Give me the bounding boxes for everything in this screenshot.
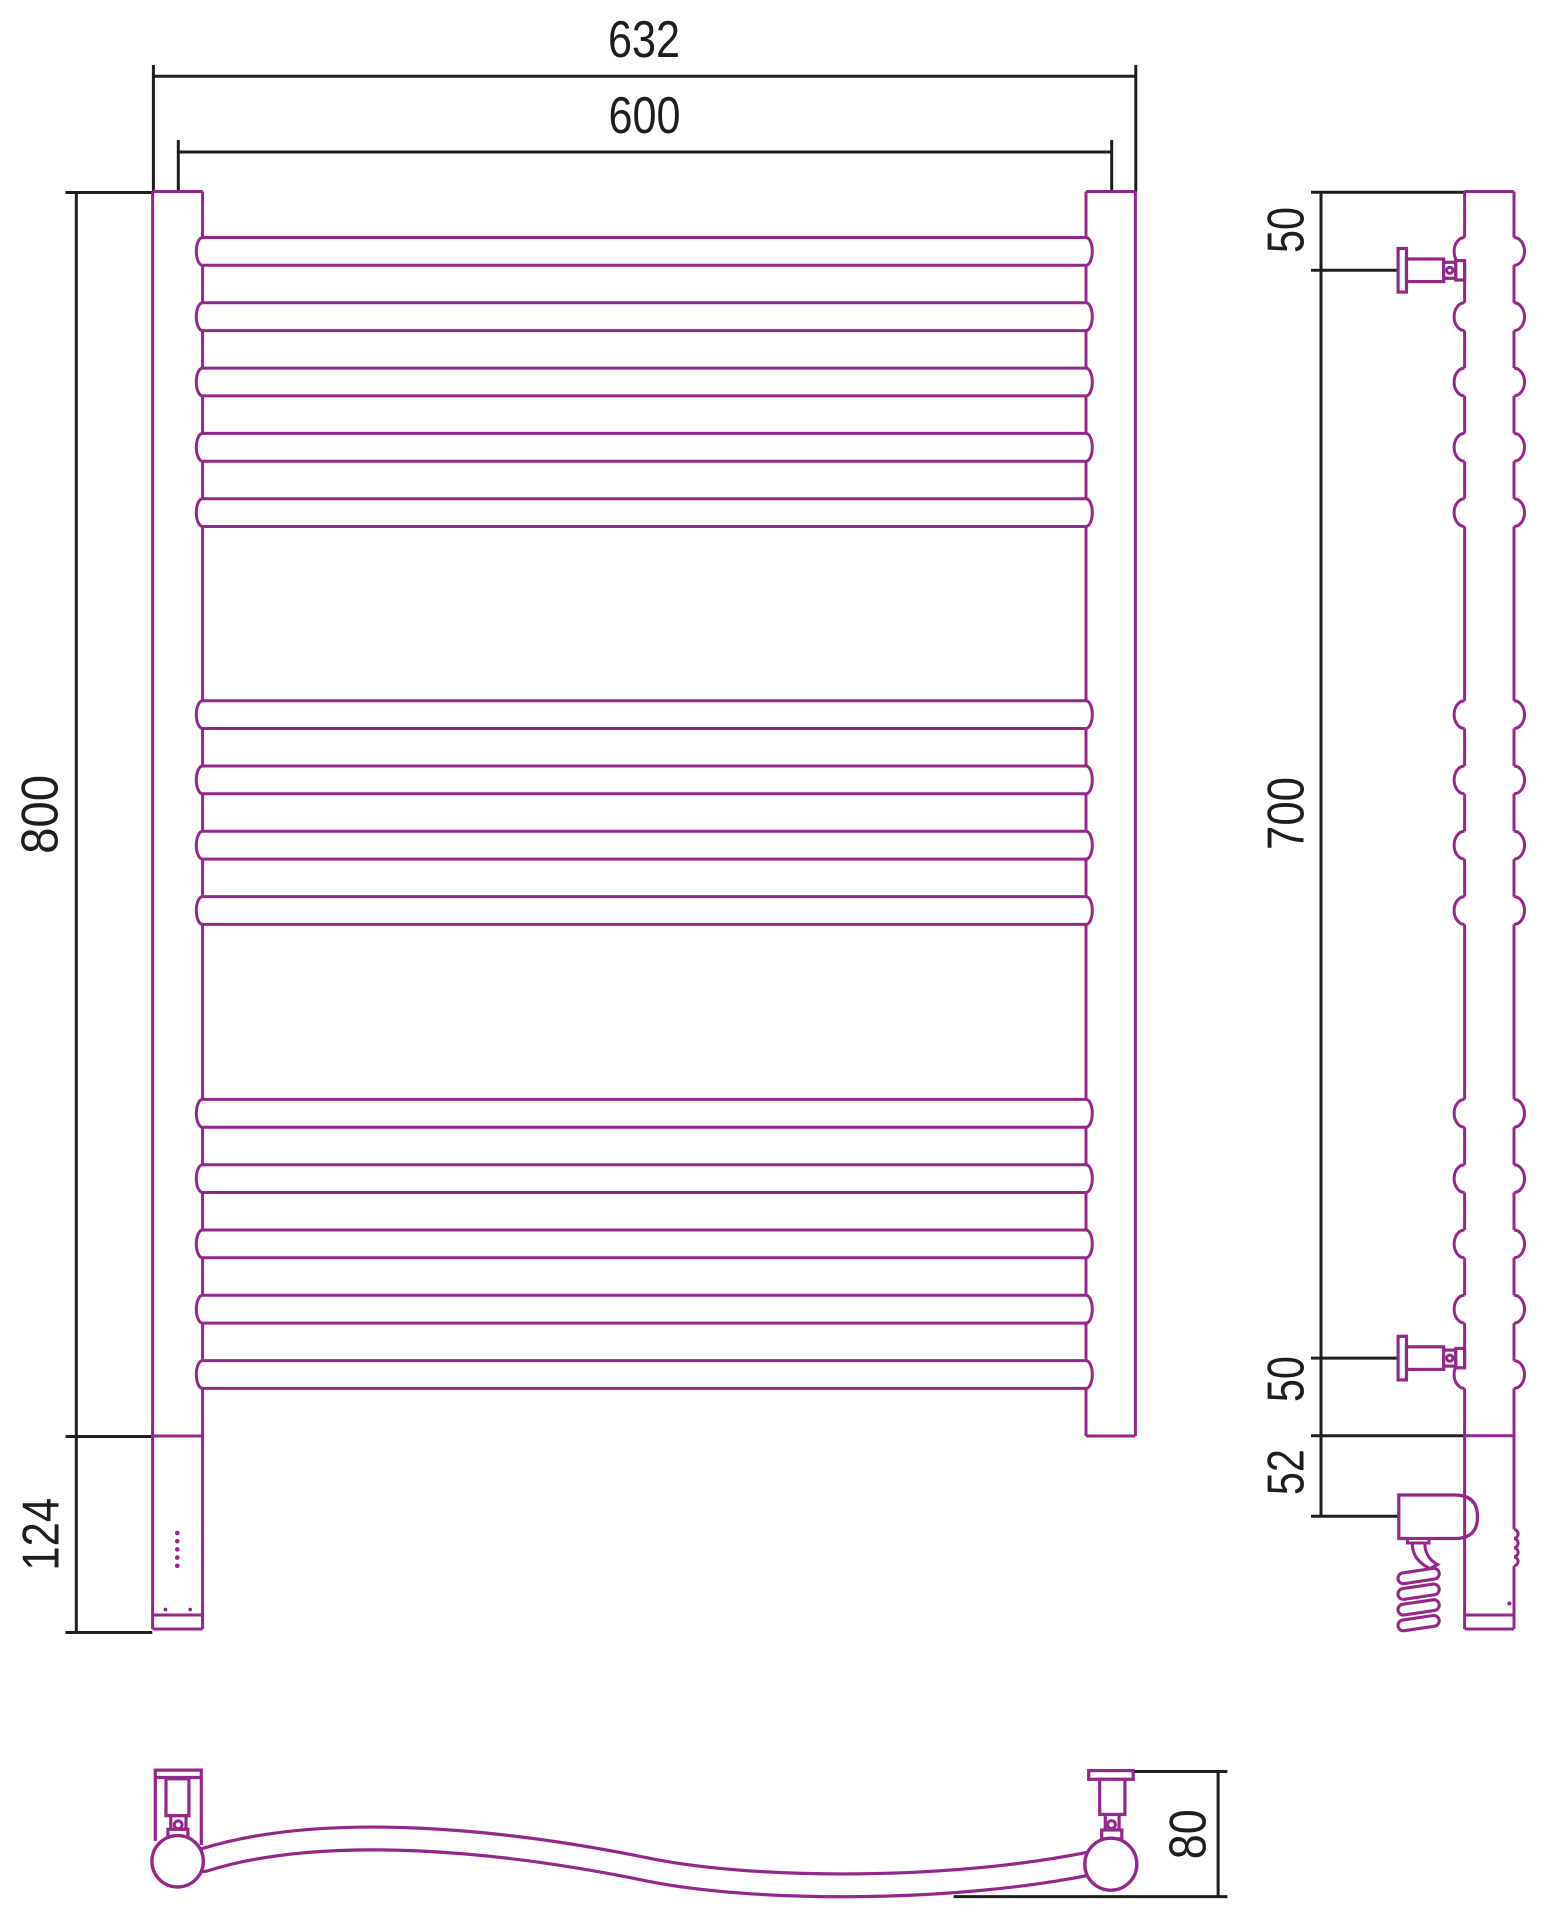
svg-text:124: 124 <box>12 1498 70 1571</box>
svg-text:632: 632 <box>608 11 680 69</box>
svg-text:52: 52 <box>1258 1449 1316 1495</box>
svg-text:50: 50 <box>1258 1356 1316 1402</box>
svg-text:600: 600 <box>609 87 681 145</box>
svg-text:700: 700 <box>1258 777 1316 850</box>
svg-text:80: 80 <box>1160 1809 1218 1859</box>
svg-text:800: 800 <box>11 775 69 854</box>
svg-text:50: 50 <box>1258 207 1316 253</box>
